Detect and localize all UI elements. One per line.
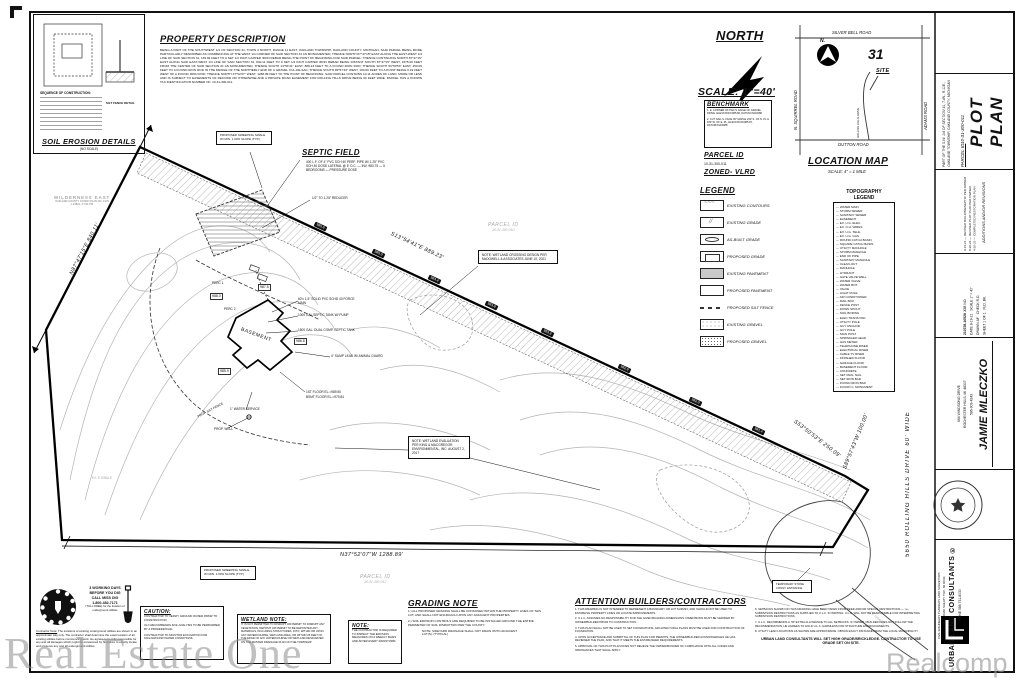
sequence-lines <box>40 97 102 131</box>
watermark-real-estate-one: Real Estate One <box>4 628 302 679</box>
client-name: JAMIE MLECZKO <box>978 341 993 467</box>
perc1-label: PERC 1 <box>212 281 224 285</box>
grading-note-item: 2.) SOIL EROSION CONTROLS ARE REQUIRED T… <box>408 620 548 628</box>
attention-item: 3. THIS PLAN SHALL NOT BE USED TO SET FO… <box>575 627 747 634</box>
grading-note-items: 1.) ALL PROPOSED GRADING SHALL BE CONTAI… <box>408 610 558 628</box>
plot-plan-sheet: SEQUENCE OF CONSTRUCTION: SILT FENCE DET… <box>0 0 1024 685</box>
legend-item: EXISTING PAVEMENT <box>700 265 800 282</box>
spot-grade: 985.9 <box>218 368 231 375</box>
legend-item: EXISTING CONTOURS <box>700 197 800 214</box>
sequence-title: SEQUENCE OF CONSTRUCTION: <box>40 91 91 95</box>
house-note-forcemain: 60'± 1.5" SOLID PVC SCHD 40 FORCE MAIN <box>298 297 360 305</box>
ex-swale-label: EX. E SWALE <box>92 476 112 480</box>
topo-legend-item: FOUND C. MONUMENT <box>836 385 892 389</box>
revision-row: 4-20-23 — COMPLETED RESTORATION PLAN <box>973 173 978 251</box>
revisions-list: 9-16-21 — REVISED BUILDING/SEPTIC PER OW… <box>963 173 977 251</box>
property-description: PROPERTY DESCRIPTION BEING A PART OF THE… <box>160 34 422 84</box>
legend-item: PROPOSED PAVEMENT <box>700 282 800 299</box>
spot-grade: 988.0 <box>210 293 223 300</box>
parcel-id-title: PARCEL ID <box>704 152 744 159</box>
client-phone: 586-909-4243 <box>969 342 975 466</box>
legend-item: PROPOSED SILT FENCE <box>700 299 800 316</box>
legend-swatch <box>700 307 724 309</box>
plot-plan-description: PART OF THE S.W. 1/4 OF SECTION 31, T.4N… <box>942 77 958 167</box>
legend-item-label: PROPOSED PAVEMENT <box>727 288 772 293</box>
road-silver-bell: SILVER BELL ROAD <box>832 30 871 35</box>
client-address: 664 WINDSONG DRIVE ROCHESTER HILLS, MI 4… <box>956 342 974 466</box>
grading-sub-note: NOTE: SIDEYARD DRAINAGE SHALL NOT DRAIN … <box>422 630 522 638</box>
legend-swatch <box>700 285 724 296</box>
house-note-bsmtfloor: BSMT FLOOR EL.=979.84 <box>306 395 344 399</box>
swale-note-1: PROPOSED SWEEPING SWALE W/ MIN. 1.00% SL… <box>216 131 272 145</box>
topo-legend-title2: LEGEND <box>833 196 895 202</box>
bearing-south: N37°52'07"W 1288.89' <box>340 552 403 558</box>
temp-entrance-note: TEMPORARY STONE CONST. ENTRANCE <box>772 580 812 593</box>
road-rolling-hills: ROLLING HILLS DRIVE <box>856 88 860 138</box>
adjacent-parcel-2: PARCEL ID 10-31-300-012 <box>360 574 390 584</box>
map-north-label: N. <box>820 38 825 44</box>
legend-swatch <box>700 200 724 211</box>
house-note-tank1000: 1000 GAL SEPTIC TANK W/ PUMP <box>298 313 349 317</box>
titleblock-stamp-cell <box>935 12 1014 74</box>
scale-label: SCALE: 1"=40' <box>698 86 775 98</box>
legend-item: PROPOSED GRADE <box>700 248 800 265</box>
grading-note-title: GRADING NOTE <box>408 598 558 608</box>
legend-item-label: PROPOSED GRAVEL <box>727 339 767 344</box>
benchmark-title: BENCHMARK <box>707 102 769 108</box>
caution-item: CONTRACTOR TO VERIFY GROUND WATER PRIOR … <box>144 615 220 622</box>
attention-right-items: 6. SETBACKS SHOWN ON THIS DRAWING HAVE B… <box>755 608 927 634</box>
map-site-label: SITE <box>876 68 889 74</box>
benchmark-item: 1. E. CORNER OF PAD S. EDGE OF GRAVEL DR… <box>707 109 769 116</box>
legend-items: EXISTING CONTOURS EXISTING GRADE AS-BUIL… <box>700 197 800 350</box>
note-panel: NOTE: THE CONTRACTOR IS REQUIRED TO INSP… <box>348 620 402 664</box>
titleblock-parcel-label: PARCEL ID <box>960 143 965 166</box>
legend-item: EXISTING GRADE <box>700 214 800 231</box>
attention-panel: ATTENTION BUILDERS/CONTRACTORS 1. THIS D… <box>575 596 931 654</box>
legend-swatch <box>700 217 724 228</box>
legend-item: PROPOSED GRAVEL <box>700 333 800 350</box>
titleblock-plotplan-cell: PART OF THE S.W. 1/4 OF SECTION 31, T.4N… <box>935 74 1014 170</box>
soil-erosion-panel: SEQUENCE OF CONSTRUCTION: SILT FENCE DET… <box>33 14 145 154</box>
perc2-label: PERC 2 <box>224 307 236 311</box>
spot-grade: 987.5 <box>258 284 271 291</box>
spot-grade: 986.8 <box>294 338 307 345</box>
titleblock-jobinfo-cell: 210728-10528 JOB NO. DATE 8-19-21 SCALE … <box>935 254 1014 338</box>
swale-note-2: PROPOSED SWEEPING SWALE W/ MIN. 1.00% SL… <box>200 566 256 580</box>
north-label: NORTH <box>716 28 763 43</box>
legend-item: AS-BUILT GRADE <box>700 231 800 248</box>
legend-swatch <box>700 268 724 279</box>
jobinfo-rows: 210728-10528 JOB NO. DATE 8-19-21 SCALE … <box>962 257 988 335</box>
house-note-tank1500: 1500 GAL. DUAL COMP. SEPTIC TANK <box>298 328 355 332</box>
condo-label: WILDERNESS EAST OAKLAND COUNTY CONDO PLA… <box>42 195 122 206</box>
watermark-realcomp: Realcomp <box>886 648 1008 679</box>
parcel-id-value: 10-31-300-011 <box>704 162 727 166</box>
legend-item-label: EXISTING PAVEMENT <box>727 271 768 276</box>
silt-fence-detail-label: SILT FENCE DETAIL <box>106 101 135 105</box>
property-description-body: BEING A PART OF THE SOUTHWEST 1/4 OF SEC… <box>160 48 422 84</box>
map-north-arrow-icon <box>817 44 839 66</box>
revisions-label: ADDITIONS AND/OR REVISIONS <box>981 173 986 251</box>
road-name-label: 5650 ROLLING HILLS DRIVE 60' WIDE <box>905 392 911 557</box>
attention-item: 1. THIS DRAWING IS NOT INTENDED TO REPRE… <box>575 608 747 615</box>
attention-title: ATTENTION BUILDERS/CONTRACTORS <box>575 596 931 606</box>
titleblock-client-cell: 664 WINDSONG DRIVE ROCHESTER HILLS, MI 4… <box>935 338 1014 470</box>
miss-dig-dial-icon <box>40 589 76 625</box>
benchmark-panel: BENCHMARK 1. E. CORNER OF PAD S. EDGE OF… <box>704 100 772 148</box>
legend-item-label: PROPOSED SILT FENCE <box>727 305 774 310</box>
titleblock-parcel-value: 10-31-300-011 <box>960 114 965 143</box>
house-note-water: 1" WATER SERVICE <box>230 407 260 411</box>
attention-item: 5. APPROVAL OF THIS PLOT PLAN DOES NOT R… <box>575 645 747 652</box>
septic-reducer-note: 1/2" TO 1.25" REDUCER <box>312 196 348 200</box>
benchmark-items: 1. E. CORNER OF PAD S. EDGE OF GRAVEL DR… <box>707 109 769 128</box>
attention-item: 7. U.L.C. RECOMMENDS A .50' EXTRA ALLOWA… <box>755 621 927 628</box>
legend-item-label: EXISTING CONTOURS <box>727 203 770 208</box>
legend-swatch <box>700 336 724 347</box>
map-section-number: 31 <box>868 46 884 62</box>
attention-item: 4. UPON ACCEPTANCE AND SUBMITTAL OF THIS… <box>575 636 747 643</box>
grading-note-panel: GRADING NOTE 1.) ALL PROPOSED GRADING SH… <box>408 598 558 637</box>
property-description-title: PROPERTY DESCRIPTION <box>160 34 422 45</box>
soil-erosion-subtitle: (NO SCALE) <box>80 147 98 151</box>
topo-legend-panel: TOPOGRAPHY LEGEND WATER MAINSTORM SEWERS… <box>833 190 895 392</box>
adjacent-parcel-1: PARCEL ID 10-31-300-010 <box>488 222 518 232</box>
septic-field-title: SEPTIC FIELD <box>302 148 360 157</box>
location-map-title: LOCATION MAP <box>808 156 888 167</box>
septic-field-note: 400 L.F. OF 4" PVC SCH 40 PERF. PIPE W/ … <box>306 160 388 172</box>
house-note-sump: 4" SUMP LEAD W/ ANIMAL GUARD <box>331 354 383 358</box>
house-note-well: PROP. WELL <box>214 427 233 431</box>
note-body: THE CONTRACTOR IS REQUIRED TO INSPECT TH… <box>352 629 398 644</box>
location-map-scale: SCALE: 4" = 1 MILE <box>828 169 866 174</box>
north-arrow-icon <box>724 56 764 106</box>
wetland-eval-note: NOTE: WETLAND EVALUATION PER KING & MACG… <box>408 436 470 459</box>
wetland-crossing-note: NOTE: WETLAND CROSSING DESIGN PER McDOWE… <box>478 250 558 264</box>
titleblock-seal-cell <box>935 470 1014 540</box>
house-note-firstfloor: 1ST FLOOR EL.=989.50 <box>306 390 341 394</box>
miss-dig-block: 3 WORKING DAYS BEFORE YOU DIG CALL MISS … <box>82 586 128 613</box>
legend-item-label: EXISTING GRADE <box>727 220 761 225</box>
attention-item: 6. SETBACKS SHOWN ON THIS DRAWING HAVE B… <box>755 608 927 619</box>
grading-note-item: 1.) ALL PROPOSED GRADING SHALL BE CONTAI… <box>408 610 548 618</box>
legend-swatch <box>700 251 724 262</box>
zoned-label: ZONED- VLRD <box>704 169 755 176</box>
road-squirrel: N. SQUIRREL ROAD <box>793 60 798 130</box>
legend-item-label: EXISTING GRAVEL <box>727 322 763 327</box>
legend-title: LEGEND <box>700 186 800 195</box>
attention-left-items: 1. THIS DRAWING IS NOT INTENDED TO REPRE… <box>575 608 747 654</box>
topo-legend-items: WATER MAINSTORM SEWERSANITARY SEWEREASEM… <box>833 202 895 392</box>
legend-swatch <box>700 234 724 245</box>
plot-plan-title: PLOT PLAN <box>967 75 1007 169</box>
attention-item: 8. UTILITY LEAD LOCATIONS AS SHOWN ARE A… <box>755 630 927 634</box>
road-adams: ADAMS ROAD <box>923 60 928 130</box>
legend-item-label: AS-BUILT GRADE <box>727 237 760 242</box>
legend-item: EXISTING GRAVEL <box>700 316 800 333</box>
benchmark-item: 2. CUT NAIL S. FACE 36" MAPLE 230' S. OF… <box>707 118 769 128</box>
legend-swatch <box>700 319 724 330</box>
road-dutton: DUTTON ROAD <box>838 142 869 147</box>
titleblock-revisions-cell: 9-16-21 — REVISED BUILDING/SEPTIC PER OW… <box>935 170 1014 254</box>
legend-panel: LEGEND EXISTING CONTOURS EXISTING GRADE … <box>700 186 800 350</box>
legend-item-label: PROPOSED GRADE <box>727 254 765 259</box>
soil-erosion-title: SOIL EROSION DETAILS <box>42 137 136 146</box>
attention-footer: URBAN LAND CONSULTANTS WILL SET HIGH GRA… <box>755 637 927 646</box>
attention-item: 2. U.L.C. ASSUMES NO RESPONSIBILITY FOR … <box>575 617 747 624</box>
